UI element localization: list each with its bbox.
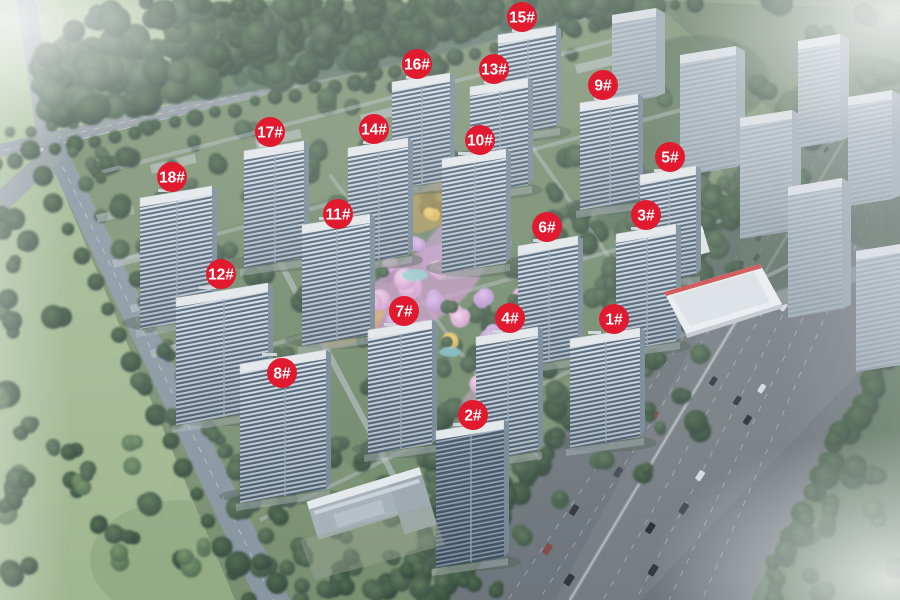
svg-text:10#: 10# [467,133,493,150]
svg-text:18#: 18# [159,170,185,187]
svg-text:9#: 9# [594,78,612,95]
svg-text:15#: 15# [509,10,535,27]
svg-text:12#: 12# [208,267,234,284]
svg-text:1#: 1# [605,312,623,329]
svg-text:14#: 14# [361,122,387,139]
svg-text:5#: 5# [661,150,679,167]
svg-text:4#: 4# [501,311,519,328]
svg-text:11#: 11# [325,207,350,224]
svg-text:3#: 3# [637,208,655,225]
svg-text:2#: 2# [464,408,482,425]
svg-text:8#: 8# [273,366,291,383]
svg-text:13#: 13# [481,62,507,79]
svg-text:6#: 6# [538,220,556,237]
svg-text:17#: 17# [257,125,283,142]
svg-text:7#: 7# [395,304,413,321]
svg-text:16#: 16# [404,57,430,74]
